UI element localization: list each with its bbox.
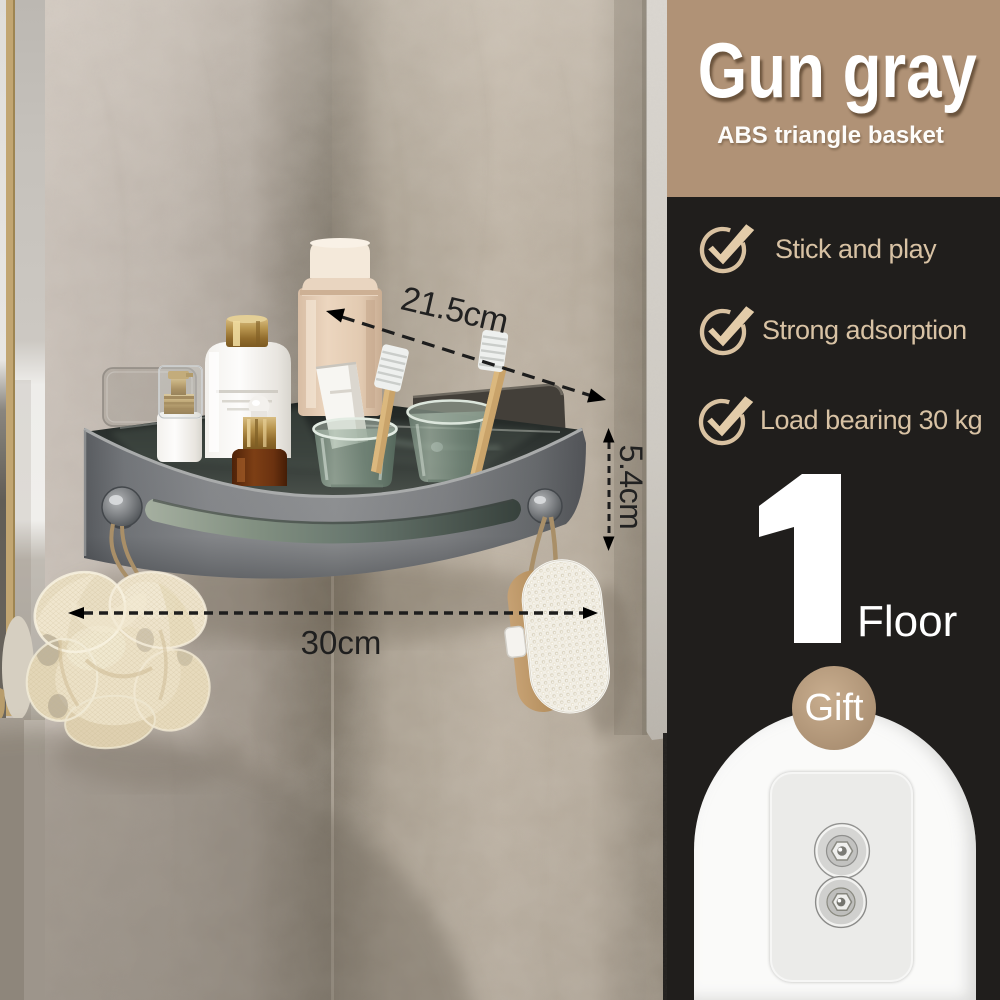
svg-text:30cm: 30cm xyxy=(301,624,382,661)
svg-text:5.4cm: 5.4cm xyxy=(613,445,649,530)
